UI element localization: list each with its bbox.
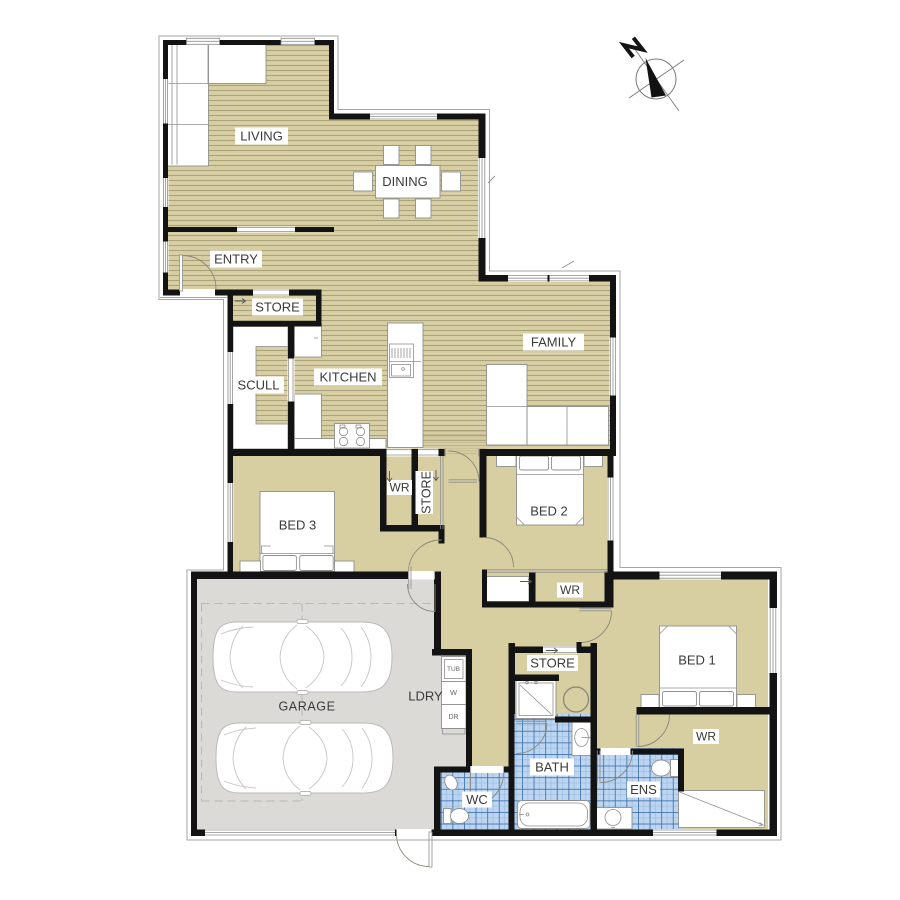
svg-text:BED 1: BED 1: [678, 653, 716, 668]
svg-text:WR: WR: [560, 583, 580, 597]
svg-text:SCULL: SCULL: [238, 378, 280, 393]
svg-text:ENTRY: ENTRY: [214, 252, 258, 267]
svg-text:TUB: TUB: [447, 666, 460, 673]
svg-text:BATH: BATH: [535, 760, 569, 775]
svg-text:WC: WC: [466, 792, 488, 807]
svg-text:ENS: ENS: [630, 782, 657, 797]
svg-text:DINING: DINING: [382, 174, 428, 189]
svg-text:W: W: [450, 688, 458, 697]
svg-text:LIVING: LIVING: [240, 129, 283, 144]
svg-text:BED 2: BED 2: [530, 504, 568, 519]
svg-text:BED 3: BED 3: [279, 518, 317, 533]
svg-text:FAMILY: FAMILY: [531, 335, 577, 350]
svg-text:STORE: STORE: [420, 471, 434, 514]
svg-text:KITCHEN: KITCHEN: [319, 370, 376, 385]
svg-text:WR: WR: [696, 730, 716, 744]
svg-text:GARAGE: GARAGE: [278, 700, 335, 714]
svg-text:STORE: STORE: [530, 656, 575, 671]
svg-text:LDRY: LDRY: [408, 689, 443, 704]
svg-text:WR: WR: [390, 481, 410, 495]
svg-text:STORE: STORE: [255, 300, 300, 315]
svg-text:DR: DR: [448, 714, 458, 721]
